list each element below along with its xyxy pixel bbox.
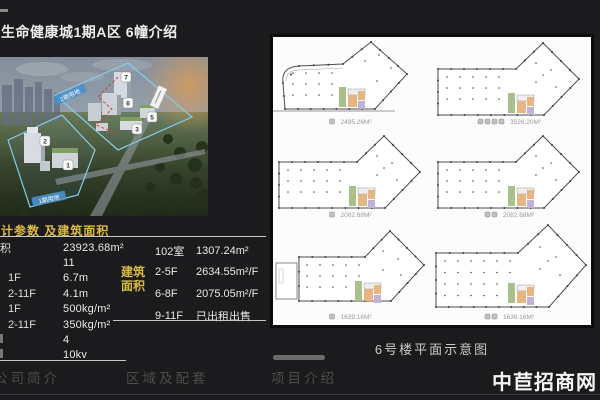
- parameters-table: 积23923.68m²111F6.7m2-11F4.1m1F500kg/m²2-…: [0, 240, 150, 363]
- parameter-row: 4: [0, 332, 150, 347]
- badge-number: 5: [150, 114, 154, 121]
- floor-area-table: 102室1307.24m²2-5F2634.55m²/F6-8F2075.05m…: [155, 240, 258, 326]
- divider: [0, 360, 126, 361]
- floor-value: 已出租出售: [196, 308, 251, 324]
- floor-plan: 1639.16M²: [432, 223, 591, 325]
- parameter-value: 350kg/m²: [63, 319, 110, 331]
- page-title: 生命健康城1期A区 6幢介绍: [1, 22, 178, 42]
- floor-plan: 3526.20M²: [432, 37, 591, 130]
- building-number-badge: 7: [121, 72, 131, 82]
- scrollbar-thumb[interactable]: [273, 355, 325, 360]
- plan-area-caption: 1639.16M²: [503, 314, 535, 321]
- divider: [113, 320, 266, 321]
- badge-number: 6: [126, 100, 130, 107]
- plan-area-caption: 1639.16M²: [341, 314, 373, 321]
- floor-plan: 2082.68M²: [432, 130, 591, 223]
- floor-label: 2-5F: [155, 266, 196, 278]
- nav-project-intro[interactable]: 项目介绍: [271, 367, 337, 387]
- parameter-value: 4: [63, 334, 69, 346]
- floor-plan: 2495.26M²: [273, 37, 432, 130]
- parameter-label: 1F: [0, 303, 63, 315]
- site-aerial-rendering: 2期用地1期用地 765321: [0, 57, 208, 216]
- badge-number: 1: [66, 162, 70, 169]
- bottom-divider: [0, 394, 600, 395]
- parameter-label: 积: [0, 240, 63, 256]
- parameter-value: 6.7m: [63, 272, 88, 284]
- building-number-badge: 6: [123, 98, 133, 108]
- floor-area-row: 6-8F2075.05m²/F: [155, 283, 258, 305]
- floor-area-row: 2-5F2634.55m²/F: [155, 262, 258, 284]
- nav-company-profile[interactable]: 公司简介: [0, 367, 60, 387]
- divider: [0, 236, 266, 237]
- parameter-value: 500kg/m²: [63, 303, 110, 315]
- cropped-text-fragment: [0, 9, 8, 12]
- parameter-row: 积23923.68m²: [0, 240, 150, 255]
- floor-value: 1307.24m²: [196, 245, 249, 257]
- floor-area-row: 9-11F已出租出售: [155, 305, 258, 327]
- parameter-value: 23923.68m²: [63, 242, 124, 254]
- cropped-label-fragment: [0, 349, 3, 358]
- badge-number: 7: [124, 74, 128, 81]
- nav-area-facilities[interactable]: 区域及配套: [126, 367, 209, 387]
- floor-plan: 2082.68M²: [273, 130, 432, 223]
- badge-number: 3: [135, 126, 139, 133]
- watermark: 中苣招商网: [492, 366, 597, 395]
- plan-area-caption: 2495.26M²: [341, 119, 373, 126]
- slide: 生命健康城1期A区 6幢介绍: [0, 0, 600, 400]
- parameter-value: 11: [63, 257, 75, 269]
- plan-area-caption: 2082.68M²: [503, 212, 535, 219]
- parameter-label: 2-11F: [0, 319, 63, 331]
- floor-plan: 1639.16M²: [273, 223, 432, 325]
- floor-area-row: 102室1307.24m²: [155, 240, 258, 262]
- plan-area-caption: 2082.68M²: [341, 212, 373, 219]
- parameter-value: 4.1m: [63, 288, 88, 300]
- floor-plans-panel: 2495.26M²3526.20M²2082.68M²2082.68M²1639…: [270, 34, 594, 328]
- floor-value: 2075.05m²/F: [196, 288, 258, 300]
- badge-number: 2: [43, 138, 47, 145]
- building-number-badge: 3: [132, 124, 142, 134]
- building-number-badge: 5: [147, 112, 157, 122]
- building-number-badge: 1: [63, 160, 73, 170]
- floor-label: 102室: [155, 243, 196, 259]
- building-number-badge: 2: [40, 136, 50, 146]
- cropped-label-fragment: [0, 334, 3, 343]
- floor-value: 2634.55m²/F: [196, 266, 258, 278]
- floor-area-label: 建筑面积: [121, 265, 147, 293]
- floor-label: 6-8F: [155, 288, 196, 300]
- parameter-row: 1F500kg/m²: [0, 302, 150, 317]
- parameter-label: 2-11F: [0, 288, 63, 300]
- parameter-label: 1F: [0, 272, 63, 284]
- plan-area-caption: 3526.20M²: [510, 119, 542, 126]
